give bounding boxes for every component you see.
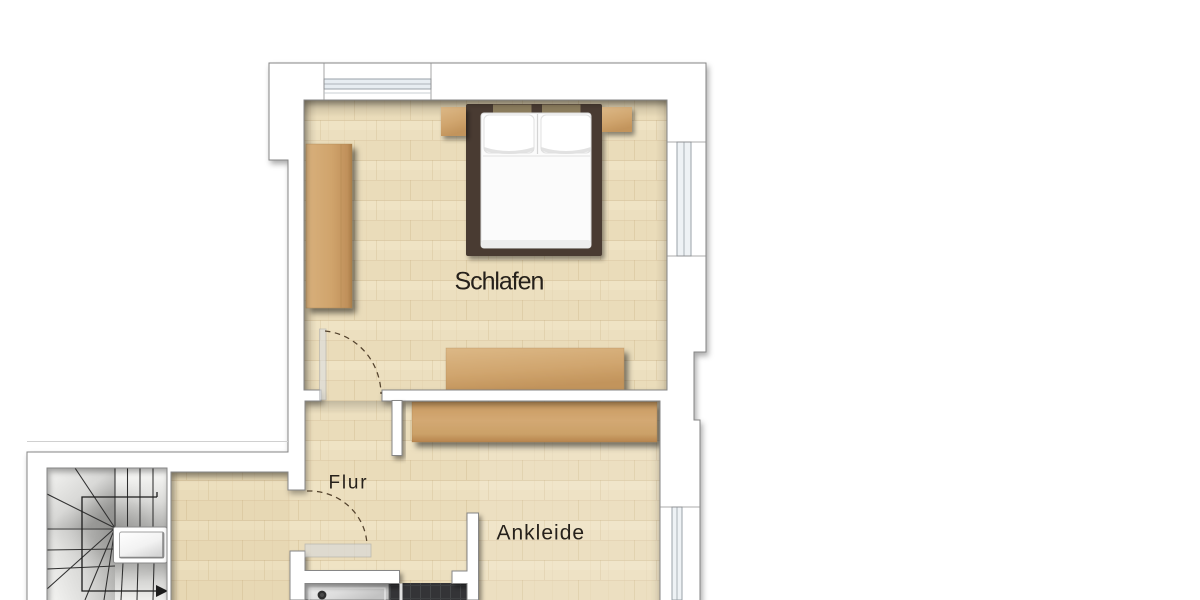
svg-text:Schlafen: Schlafen — [455, 268, 544, 296]
svg-text:Ankleide: Ankleide — [497, 522, 586, 545]
svg-text:Flur: Flur — [329, 472, 369, 493]
